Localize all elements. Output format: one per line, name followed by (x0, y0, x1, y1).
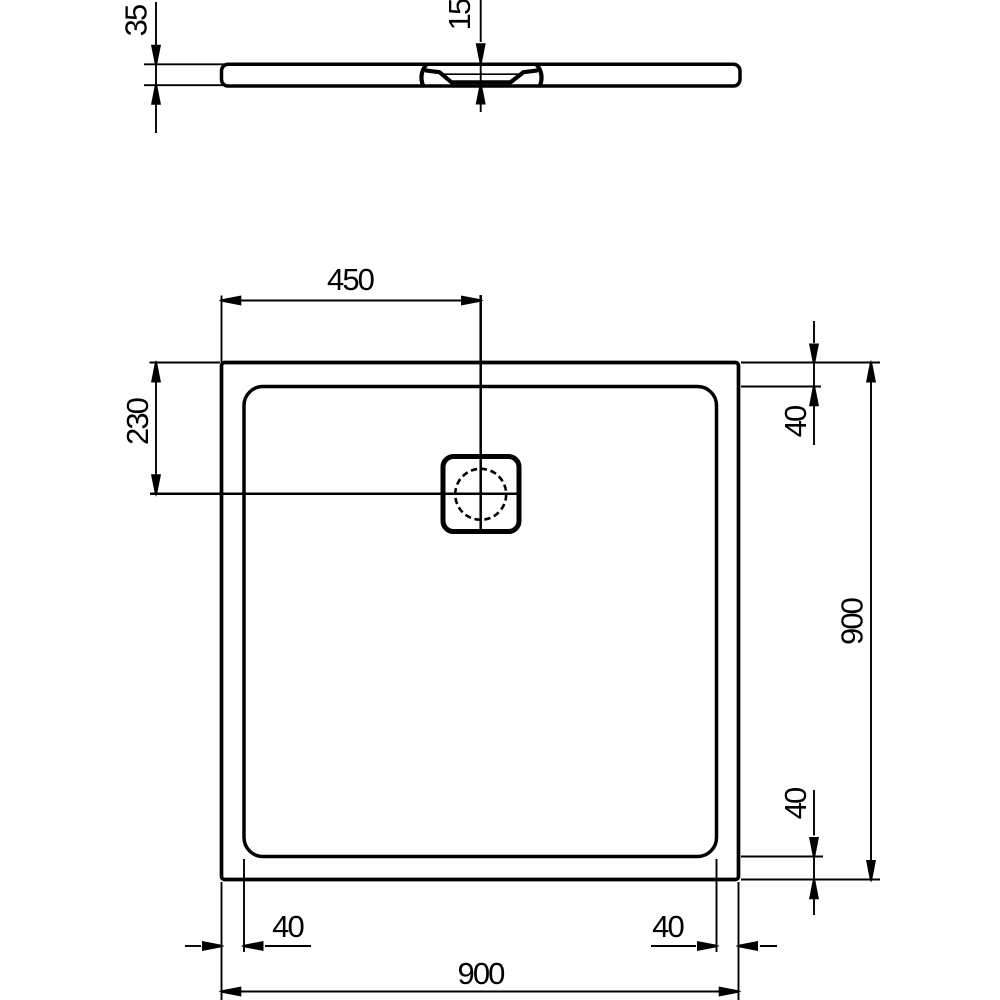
svg-text:900: 900 (835, 597, 870, 645)
svg-text:40: 40 (272, 909, 304, 944)
svg-text:40: 40 (778, 405, 813, 437)
svg-text:15: 15 (442, 0, 477, 30)
svg-text:230: 230 (120, 397, 155, 445)
svg-text:450: 450 (327, 262, 375, 297)
svg-text:35: 35 (119, 5, 154, 36)
svg-text:40: 40 (652, 909, 684, 944)
svg-text:900: 900 (457, 956, 505, 991)
svg-text:40: 40 (778, 787, 813, 819)
